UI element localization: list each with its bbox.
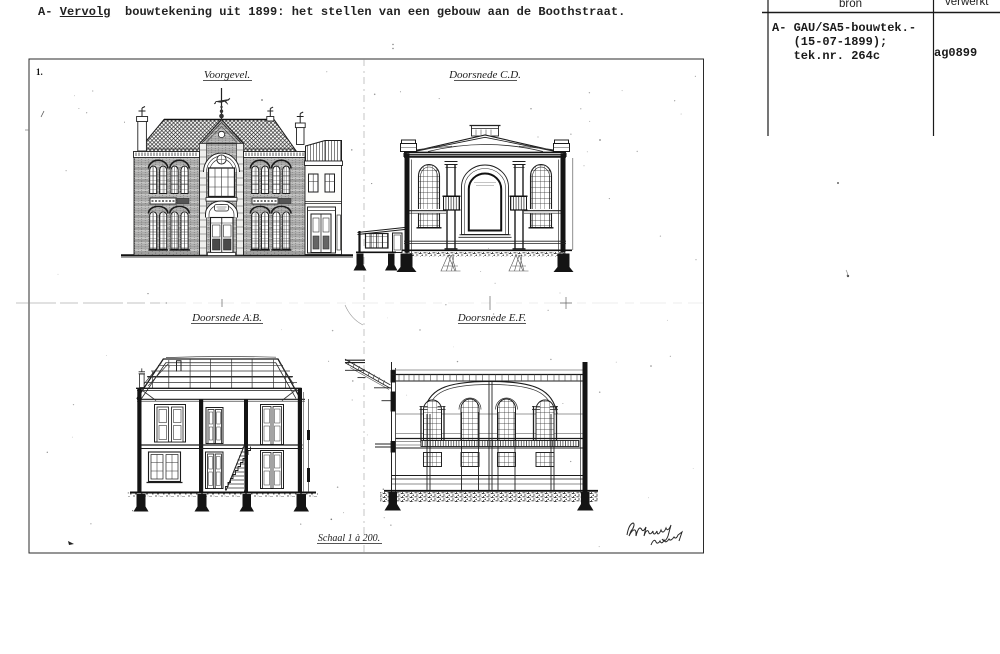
svg-text:Doorsnede A.B.: Doorsnede A.B.	[191, 312, 262, 324]
svg-text:Doorsnede E.F.: Doorsnede E.F.	[457, 312, 527, 324]
svg-text:Schaal 1 à 200.: Schaal 1 à 200.	[318, 533, 380, 544]
svg-text:Voorgevel.: Voorgevel.	[204, 69, 250, 81]
svg-text:Doorsnede C.D.: Doorsnede C.D.	[448, 69, 521, 81]
svg-text:1.: 1.	[36, 67, 43, 77]
